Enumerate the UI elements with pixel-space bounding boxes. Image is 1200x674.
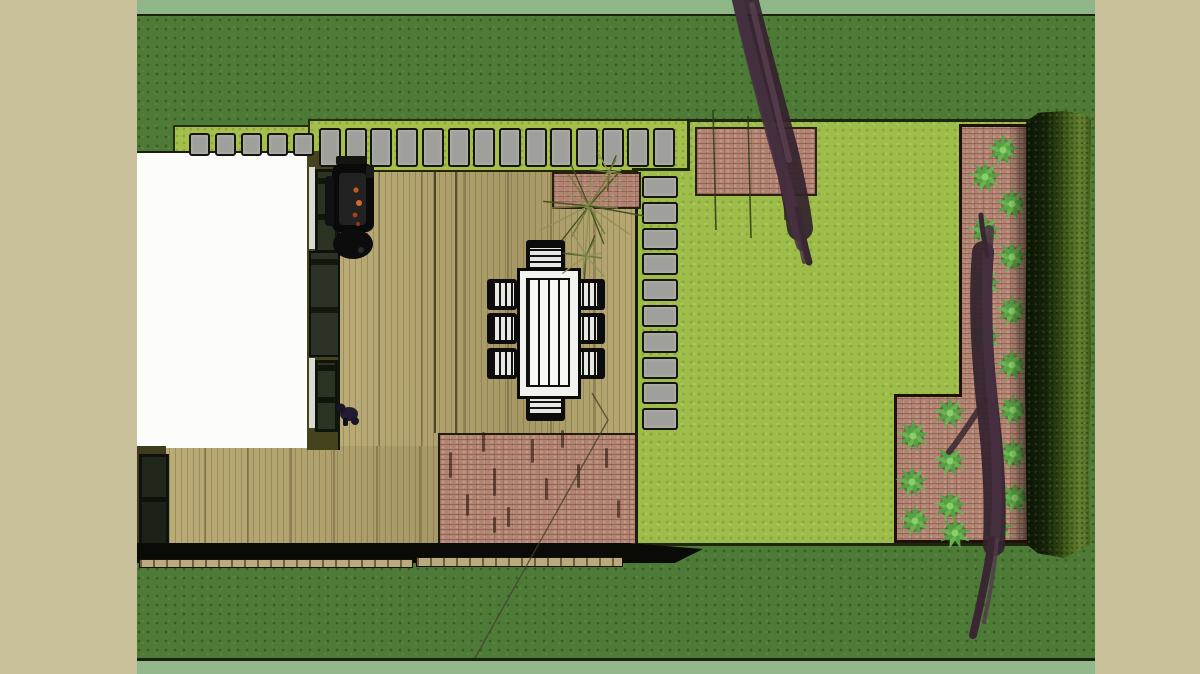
back-grass-strip-bottom bbox=[137, 658, 1095, 674]
window bbox=[315, 360, 338, 432]
brick-patio bbox=[438, 433, 637, 547]
stepping-stone bbox=[293, 133, 314, 156]
dining-chair bbox=[526, 240, 565, 270]
brick-pad-top bbox=[695, 127, 817, 196]
shrub bbox=[892, 462, 932, 502]
paver-joint bbox=[545, 478, 548, 500]
paver-joint bbox=[493, 468, 496, 496]
dining-chair bbox=[487, 313, 517, 344]
garden-plan-scene bbox=[137, 0, 1095, 674]
stepping-stone bbox=[642, 253, 678, 275]
dining-chair bbox=[487, 348, 517, 379]
stepping-stone bbox=[319, 128, 341, 167]
stepping-stone bbox=[370, 128, 392, 167]
stepping-stone bbox=[642, 202, 678, 224]
dining-table-slats bbox=[526, 278, 570, 387]
stepping-stone bbox=[422, 128, 444, 167]
chair-slats bbox=[495, 317, 514, 340]
shrub bbox=[935, 513, 975, 553]
stepping-stone bbox=[525, 128, 547, 167]
stepping-stone bbox=[642, 408, 678, 430]
stepping-stone bbox=[267, 133, 288, 156]
hedge-shadow bbox=[1009, 127, 1027, 540]
stepping-stone bbox=[241, 133, 262, 156]
stepping-stone bbox=[499, 128, 521, 167]
back-grass-strip-top bbox=[137, 0, 1095, 16]
stepping-stone bbox=[642, 357, 678, 379]
stepping-stone bbox=[642, 331, 678, 353]
stepping-stone bbox=[642, 228, 678, 250]
stepping-stone bbox=[576, 128, 598, 167]
sliding-door bbox=[309, 251, 340, 357]
viewport[interactable] bbox=[0, 0, 1200, 674]
paver-joint bbox=[605, 448, 608, 468]
stepping-stone bbox=[642, 176, 678, 198]
shrub bbox=[893, 416, 933, 456]
deck-seam bbox=[434, 172, 436, 433]
chair-slats bbox=[495, 352, 514, 375]
shrub bbox=[895, 501, 935, 541]
paver-joint bbox=[449, 452, 452, 478]
paver-joint bbox=[482, 432, 485, 452]
paver-joint bbox=[617, 500, 620, 518]
stepping-stone bbox=[396, 128, 418, 167]
stepping-stone bbox=[345, 128, 367, 167]
stepping-stone bbox=[653, 128, 675, 167]
stepping-stone bbox=[627, 128, 649, 167]
hedge bbox=[1025, 111, 1091, 558]
stepping-stone bbox=[215, 133, 236, 156]
stepping-stone bbox=[448, 128, 470, 167]
shrub bbox=[930, 393, 970, 433]
paver-joint bbox=[466, 494, 469, 516]
stepping-stone bbox=[550, 128, 572, 167]
stepping-stone bbox=[189, 133, 210, 156]
stepping-stone bbox=[642, 279, 678, 301]
stepping-stone bbox=[473, 128, 495, 167]
paver-joint bbox=[577, 464, 580, 488]
brick-inset-planter bbox=[552, 172, 641, 209]
paver-joint bbox=[493, 517, 496, 533]
paver-joint bbox=[507, 507, 510, 527]
house-footprint bbox=[137, 151, 307, 448]
window bbox=[315, 169, 338, 253]
window bbox=[139, 454, 169, 549]
chair-slats bbox=[530, 248, 561, 267]
paver-joint bbox=[531, 439, 534, 463]
stepping-stone bbox=[602, 128, 624, 167]
low-fence bbox=[139, 559, 413, 568]
stepping-stone bbox=[642, 382, 678, 404]
low-fence bbox=[416, 557, 623, 567]
shrub bbox=[930, 441, 970, 481]
paver-joint bbox=[561, 430, 564, 448]
stepping-stone bbox=[642, 305, 678, 327]
deck-seam bbox=[455, 172, 457, 433]
dining-chair bbox=[487, 279, 517, 310]
chair-slats bbox=[495, 283, 514, 306]
